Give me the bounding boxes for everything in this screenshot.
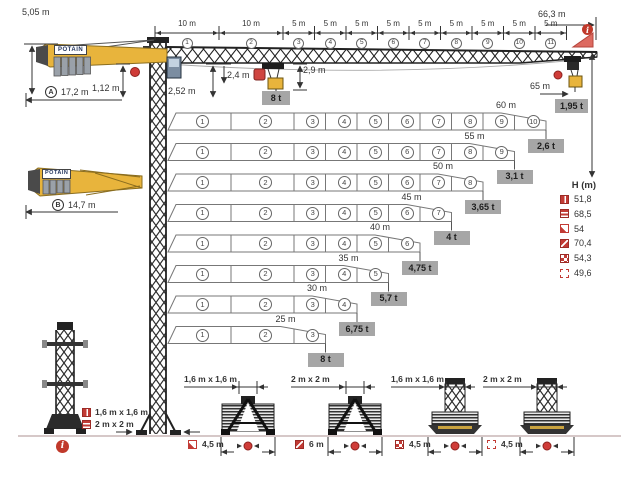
config-section-number: 2 [259, 268, 272, 281]
base-ballast [432, 412, 478, 425]
config-section-number: 4 [338, 207, 351, 220]
config-section-number: 8 [464, 176, 477, 189]
config-section-number: 6 [401, 146, 414, 159]
config-section-number: 1 [196, 237, 209, 250]
config-section-number: 5 [369, 207, 382, 220]
height-table-header: H (m) [552, 181, 596, 191]
jib-config-outline [168, 327, 326, 344]
counterjib-tip-cap [36, 45, 48, 66]
config-section-number: 2 [259, 146, 272, 159]
height-value: 54,3 [574, 253, 592, 263]
config-section-number: 8 [464, 115, 477, 128]
base-ballast [524, 412, 570, 425]
max-load-badge: 8 t [262, 91, 290, 105]
config-length-label: 30 m [299, 284, 335, 293]
jib-section-number: 4 [325, 38, 336, 49]
dim-arrow [410, 31, 415, 36]
config-section-number: 1 [196, 329, 209, 342]
dim-arrow [277, 31, 282, 36]
height-value: 54 [574, 224, 584, 234]
config-section-number: 3 [306, 268, 319, 281]
config-section-number: 2 [259, 298, 272, 311]
base-track-icon [295, 440, 304, 449]
tip-marker-dot [554, 71, 562, 79]
mast-legend-row: 2 m x 2 m [82, 419, 134, 429]
config-section-number: 4 [338, 237, 351, 250]
tip-radius-label: 65 m [530, 82, 550, 91]
config-length-label: 45 m [394, 193, 430, 202]
red-marker-icon [254, 69, 265, 80]
base-track-value: 4,5 m [409, 440, 431, 449]
base-dashed-icon [487, 440, 496, 449]
brand-logo-b: POTAIN [42, 169, 71, 179]
base-track-icon [188, 440, 197, 449]
base-track-icon [487, 440, 496, 449]
crane-spec-diagram: 5,05 m A 17,2 m 1,12 m 2,52 m 2,4 m 2,9 … [0, 0, 634, 477]
config-section-number: 4 [338, 176, 351, 189]
config-section-number: 4 [338, 115, 351, 128]
info-icon-top: i [582, 24, 593, 35]
brand-logo: POTAIN [54, 45, 87, 55]
base-diagonal-icon [560, 239, 569, 248]
info-icon-bottom: i [56, 440, 69, 453]
height-table-row: 68,5 [560, 209, 592, 219]
dim-arrow [466, 31, 471, 36]
dim-2-52: 2,52 m [168, 87, 196, 96]
base-tower [445, 384, 465, 412]
base-corner-icon [188, 440, 197, 449]
base-diagonal-icon [295, 440, 304, 449]
config-section-number: 3 [306, 207, 319, 220]
height-table-row: 49,6 [560, 268, 592, 278]
center-pin-marker [351, 442, 359, 450]
config-section-number: 1 [196, 298, 209, 311]
height-table-row: 51,8 [560, 194, 592, 204]
radius-a-value: 17,2 m [61, 88, 89, 97]
config-section-number: 5 [369, 146, 382, 159]
slew-center-marker [131, 68, 140, 77]
center-pin-marker [543, 442, 551, 450]
dim-arrow [561, 31, 566, 36]
dim-arrow [316, 31, 321, 36]
dim-2-9: 2,9 m [303, 66, 326, 75]
dim-arrow [284, 31, 289, 36]
config-section-number: 2 [259, 176, 272, 189]
jib-section-length: 5 m [348, 20, 376, 28]
config-section-number: 5 [369, 268, 382, 281]
jib-section-length: 5 m [537, 20, 565, 28]
dim-arrow [403, 31, 408, 36]
height-table-row: 54,3 [560, 253, 592, 263]
tip-load-badge: 8 t [308, 353, 344, 367]
config-length-label: 50 m [425, 162, 461, 171]
dim-arrow [435, 31, 440, 36]
base-track-value: 6 m [309, 440, 324, 449]
config-section-number: 8 [464, 146, 477, 159]
config-section-number: 7 [432, 146, 445, 159]
jib-section-length: 5 m [474, 20, 502, 28]
tip-load-badge: 6,75 t [339, 322, 375, 336]
ballast-blocks [54, 57, 91, 76]
main-mast [136, 37, 181, 435]
jib-section-length: 5 m [316, 20, 344, 28]
dim-arrow [379, 31, 384, 36]
tip-load-badge: 5,7 t [371, 292, 407, 306]
height-value: 70,4 [574, 238, 592, 248]
mast-1-6-icon [82, 408, 91, 417]
jib-section-number: 8 [451, 38, 462, 49]
config-section-number: 2 [259, 115, 272, 128]
config-section-number: 4 [338, 298, 351, 311]
tip-load-badge: 4 t [434, 231, 470, 245]
config-section-number: 10 [527, 115, 540, 128]
base-size-label: 2 m x 2 m [483, 375, 522, 384]
tip-load-badge: 3,65 t [465, 200, 501, 214]
mast-2-icon [82, 420, 91, 429]
tip-load-badge: 3,1 t [497, 170, 533, 184]
aux-mast [42, 322, 88, 434]
operator-cab [167, 57, 181, 78]
jib-section-length: 5 m [442, 20, 470, 28]
config-section-number: 1 [196, 176, 209, 189]
dim-arrow [309, 31, 314, 36]
config-section-number: 1 [196, 115, 209, 128]
center-pin-marker [244, 442, 252, 450]
base-tower [537, 384, 557, 412]
dim-arrow [156, 31, 161, 36]
overall-length-label: 66,3 m [538, 10, 566, 19]
config-length-label: 60 m [488, 101, 524, 110]
jib-section-number: 6 [388, 38, 399, 49]
jib-section-number: 2 [246, 38, 257, 49]
base-track-icon [395, 440, 404, 449]
height-table-row: 54 [560, 224, 584, 234]
mast-legend-label: 2 m x 2 m [95, 419, 134, 429]
dim-arrow [505, 31, 510, 36]
base-size-label: 1,6 m x 1,6 m [184, 375, 237, 384]
dim-arrow [213, 31, 218, 36]
config-section-number: 3 [306, 329, 319, 342]
height-table-row: 70,4 [560, 238, 592, 248]
dim-arrow [529, 31, 534, 36]
base-corner-icon [560, 224, 569, 233]
warning-flag [573, 33, 593, 47]
dim-1-12: 1,12 m [92, 84, 120, 93]
config-section-number: 4 [338, 268, 351, 281]
config-section-number: 9 [495, 146, 508, 159]
dim-arrow [536, 31, 541, 36]
config-section-number: 6 [401, 237, 414, 250]
dim-arrow [220, 31, 225, 36]
base-size-label: 2 m x 2 m [291, 375, 330, 384]
tip-load-badge: 2,6 t [528, 139, 564, 153]
mast-1-6-icon [560, 195, 569, 204]
config-section-number: 4 [338, 146, 351, 159]
jib-section-length: 5 m [379, 20, 407, 28]
config-length-label: 35 m [331, 254, 367, 263]
dim-arrow [372, 31, 377, 36]
dim-arrow [498, 31, 503, 36]
config-section-number: 3 [306, 146, 319, 159]
jib-section-length: 5 m [505, 20, 533, 28]
jib-section-number: 10 [514, 38, 525, 49]
mast-legend-label: 1,6 m x 1,6 m [95, 407, 148, 417]
radius-b-value: 14,7 m [68, 201, 96, 210]
config-length-label: 25 m [268, 315, 304, 324]
jib-section-length: 10 m [237, 20, 265, 28]
base-track-value: 4,5 m [501, 440, 523, 449]
mast-legend-row: 1,6 m x 1,6 m [82, 407, 148, 417]
height-value: 51,8 [574, 194, 592, 204]
radius-b-badge: B [52, 199, 64, 211]
dim-counterjib-height: 5,05 m [22, 8, 50, 17]
height-value: 68,5 [574, 209, 592, 219]
mast-2-icon [560, 209, 569, 218]
config-section-number: 2 [259, 237, 272, 250]
height-value: 49,6 [574, 268, 592, 278]
tip-load-badge: 1,95 t [555, 99, 588, 113]
config-section-number: 6 [401, 207, 414, 220]
jib-section-length: 5 m [411, 20, 439, 28]
config-section-number: 1 [196, 268, 209, 281]
config-section-number: 6 [401, 176, 414, 189]
base-size-label: 1,6 m x 1,6 m [391, 375, 444, 384]
jib-section-length: 5 m [285, 20, 313, 28]
config-section-number: 2 [259, 207, 272, 220]
dim-arrow [473, 31, 478, 36]
jib-section-number: 1 [182, 38, 193, 49]
config-section-number: 7 [432, 207, 445, 220]
center-pin-marker [451, 442, 459, 450]
config-section-number: 2 [259, 329, 272, 342]
config-length-label: 40 m [362, 223, 398, 232]
config-section-number: 6 [401, 115, 414, 128]
dim-arrow [347, 31, 352, 36]
jib-section-length: 10 m [173, 20, 201, 28]
dim-arrow [340, 31, 345, 36]
dim-arrow [442, 31, 447, 36]
config-section-number: 1 [196, 207, 209, 220]
config-section-number: 1 [196, 146, 209, 159]
base-track-value: 4,5 m [202, 440, 224, 449]
jib-lattice [167, 47, 597, 70]
dim-2-4: 2,4 m [227, 71, 250, 80]
config-length-label: 55 m [457, 132, 493, 141]
base-checker-icon [395, 440, 404, 449]
base-checker-icon [560, 254, 569, 263]
tip-load-badge: 4,75 t [402, 261, 438, 275]
radius-a-badge: A [45, 86, 57, 98]
base-dashed-icon [560, 269, 569, 278]
